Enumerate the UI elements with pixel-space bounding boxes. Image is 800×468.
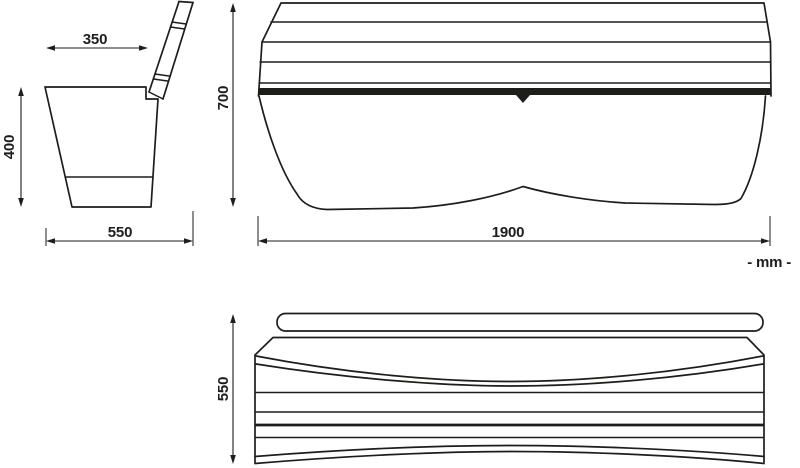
front-upper-outline — [259, 3, 772, 96]
dimension-label-550: 550 — [108, 224, 132, 241]
dim-seat-height: 400 — [1, 87, 24, 207]
arrowhead-top — [230, 3, 236, 12]
arrowhead-right — [761, 238, 770, 243]
backrest-rung — [172, 22, 186, 24]
plan-rear-curve — [256, 356, 763, 382]
dim-overall-height: 700 — [215, 3, 236, 207]
dim-seat-top-depth: 350 — [46, 31, 148, 51]
front-seat-edge-band — [259, 88, 772, 95]
bench-technical-drawing: 350 400 700 550 — [0, 0, 800, 468]
front-center-notch — [516, 95, 530, 103]
units-label: - mm - — [747, 254, 791, 271]
technical-drawing-page: 350 400 700 550 — [0, 0, 800, 468]
arrowhead-left — [46, 45, 55, 50]
plan-seat-outline — [255, 338, 764, 463]
side-view: 350 400 700 550 — [1, 2, 236, 247]
dimension-label-700: 700 — [215, 86, 232, 110]
side-seat-outline — [45, 87, 158, 207]
arrowhead-right — [184, 238, 193, 243]
plan-view: 550 — [215, 314, 764, 465]
arrowhead-top — [230, 314, 236, 323]
backrest-rung — [154, 79, 168, 81]
dimension-label-350: 350 — [83, 31, 107, 48]
dimension-label-550-plan: 550 — [215, 377, 232, 401]
backrest-rung — [171, 27, 185, 29]
dim-plan-depth: 550 — [215, 314, 236, 464]
backrest-outer-rail — [163, 3, 193, 100]
arrowhead-top — [18, 87, 24, 96]
front-lower-body-outline — [259, 96, 766, 210]
dimension-label-400: 400 — [1, 135, 18, 159]
arrowhead-bottom — [230, 198, 236, 207]
backrest-rung — [155, 74, 169, 76]
arrowhead-left — [46, 238, 55, 243]
dim-overall-depth: 550 — [46, 211, 193, 246]
arrowhead-right — [139, 45, 148, 50]
plan-front-curve — [255, 452, 764, 464]
backrest-top-cap — [179, 2, 193, 3]
plan-rear-curve — [256, 364, 763, 386]
arrowhead-left — [258, 238, 267, 243]
dimension-label-1900: 1900 — [492, 224, 525, 241]
arrowhead-bottom — [18, 198, 24, 207]
dim-overall-length: 1900 — [258, 216, 770, 246]
arrowhead-bottom — [230, 455, 236, 464]
plan-backrest-bar — [277, 314, 763, 332]
front-view: 1900 - mm - — [258, 3, 791, 271]
side-backrest — [149, 2, 193, 100]
backrest-rung — [149, 92, 163, 99]
